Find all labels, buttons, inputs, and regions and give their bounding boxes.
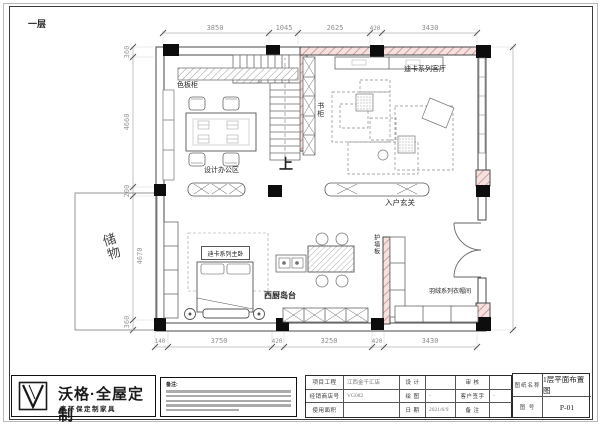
- cloakroom-closet-column: [390, 237, 405, 317]
- dim-bottom-1: 140: [155, 338, 166, 345]
- draft-value: -: [426, 390, 456, 404]
- bed: [185, 262, 265, 320]
- double-door: [454, 223, 481, 277]
- label-wall-panel: 护墙板: [372, 234, 379, 255]
- signature-value: -: [490, 390, 513, 404]
- signature-label: 客户签字: [456, 390, 490, 404]
- review-label: 审 核: [456, 376, 490, 390]
- project-value: 江西金千汇店: [344, 376, 400, 390]
- date-value: 2021/6/9: [426, 403, 456, 417]
- dim-bottom-2: 3750: [211, 337, 228, 345]
- drawing-name-value: 1层平面布置图: [543, 374, 591, 397]
- label-cloakroom: 羽绒系列衣帽间: [429, 289, 471, 296]
- sample-board-cabinet: [178, 68, 298, 80]
- brand-logo-icon: [18, 381, 48, 411]
- design-value: [426, 376, 456, 390]
- drawing-no-value: P-01: [543, 397, 591, 417]
- dim-top-2: 1045: [276, 24, 293, 32]
- label-design-office-area: 设计办公区: [204, 167, 239, 175]
- dim-bottom-3: 420: [272, 338, 283, 345]
- label-living-room: 迪卡系列客厅: [404, 66, 446, 74]
- dim-bottom-6: 3430: [422, 337, 439, 345]
- project-info-table: 项目工程 江西金千汇店 设 计 审 核 经销商店号 VG082 绘 图 - 客户…: [305, 375, 512, 418]
- remark-value: [490, 403, 513, 417]
- drawing-no-label: 图 号: [513, 397, 543, 417]
- sofa-sketch: [332, 80, 454, 174]
- bedroom-wardrobe: [164, 222, 178, 318]
- floor-plan-canvas: [0, 0, 600, 424]
- dim-bottom-4: 3250: [321, 337, 338, 345]
- dim-top-1: 3850: [207, 24, 224, 32]
- notes-label: 备注:: [166, 381, 291, 388]
- area-label: 使用面积: [306, 403, 344, 417]
- area-value: [344, 403, 400, 417]
- dealer-value: VG082: [344, 390, 400, 404]
- project-label: 项目工程: [306, 376, 344, 390]
- label-sample-board-cabinet: 色板柜: [177, 82, 198, 90]
- office-side-cabinet: [163, 90, 174, 180]
- drawing-name-label: 图纸名称: [513, 374, 543, 397]
- office-console-table: [188, 183, 245, 196]
- kitchen-sink-counter: [276, 255, 306, 272]
- remark-label: 备 注: [456, 403, 490, 417]
- meeting-table: [186, 113, 256, 151]
- dim-left-5: 360: [123, 316, 131, 329]
- review-value: [490, 376, 513, 390]
- display-cabinet-row: [283, 308, 368, 322]
- dim-top-4: 420: [370, 25, 381, 32]
- dim-left-1: 360: [123, 46, 131, 59]
- dim-top-3: 2625: [327, 24, 344, 32]
- dim-left-2: 4660: [123, 114, 131, 131]
- entry-console-table: [325, 183, 429, 196]
- bookcase-cabinet: [303, 57, 315, 155]
- dim-bottom-5: 420: [372, 338, 383, 345]
- floor-label: 一层: [28, 20, 46, 30]
- dim-left-3: 200: [123, 185, 131, 198]
- label-west-kitchen-island: 西厨岛台: [264, 292, 296, 301]
- kitchen-island-counter: [308, 246, 354, 272]
- design-label: 设 计: [400, 376, 426, 390]
- label-entry-foyer: 入户玄关: [385, 199, 415, 207]
- brand-tagline: 真环保定制家具: [60, 403, 116, 413]
- logo-box: 沃格·全屋定制 真环保定制家具: [11, 375, 156, 417]
- date-label: 日 期: [400, 403, 426, 417]
- label-stairs-up: 上: [279, 157, 293, 172]
- label-bookcase: 书柜: [316, 102, 324, 118]
- drawing-sheet: 一层 3850 1045 2625 420 3430 140 3750 420 …: [0, 0, 600, 424]
- cloakroom-bottom-cabinets: [395, 306, 478, 322]
- storage-room-outline: [75, 193, 157, 330]
- draft-label: 绘 图: [400, 390, 426, 404]
- notes-box: 备注:: [160, 377, 297, 417]
- label-master-bedroom: 迪卡系列主卧: [201, 246, 250, 260]
- drawing-info-table: 图纸名称 1层平面布置图 图 号 P-01: [512, 373, 590, 418]
- dim-top-5: 3430: [422, 24, 439, 32]
- notes-text-lines: [166, 390, 291, 411]
- dealer-label: 经销商店号: [306, 390, 344, 404]
- dim-left-4: 4670: [136, 248, 144, 265]
